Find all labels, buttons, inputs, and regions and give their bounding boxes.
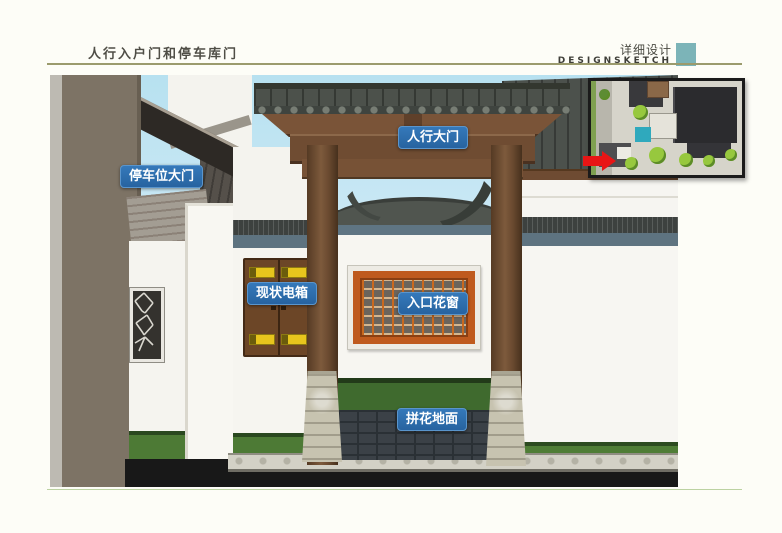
annotation-parking-gate: 停车位大门 [120, 165, 203, 188]
white-pillar [185, 203, 236, 474]
footer-divider [47, 489, 742, 490]
ebox-wall-band [233, 235, 307, 248]
annotation-entrance-window: 入口花窗 [398, 292, 468, 315]
annotation-electric-box: 现状电箱 [247, 282, 317, 305]
plan-water-feature [635, 127, 651, 142]
stone-drum-left [302, 371, 342, 462]
design-slide: 人行入户门和停车库门 详细设计 DESIGNSKETCH [0, 0, 782, 533]
stone-drum-right [486, 371, 526, 466]
right-wall-band [522, 233, 678, 246]
plan-roof-main [673, 87, 737, 143]
electric-box [243, 258, 313, 357]
annotation-pedestrian-gate: 人行大门 [398, 126, 468, 149]
locator-arrow-icon [583, 151, 619, 171]
warning-sticker-icon [281, 267, 307, 278]
page-title: 人行入户门和停车库门 [88, 43, 238, 62]
plan-brown-block [647, 81, 669, 98]
right-white-wall [522, 246, 678, 444]
left-grass-strip [129, 431, 185, 461]
gate-eave-tiles [254, 106, 570, 114]
tree-icon [649, 147, 666, 164]
door-handle-icon [271, 306, 276, 310]
tree-icon [599, 89, 610, 100]
plan-pavilion [649, 113, 677, 139]
gate-wall-coping [338, 225, 491, 235]
right-wall-top [516, 180, 678, 218]
door-handle-icon [281, 306, 286, 310]
annotation-mosaic-paving: 拼花地面 [397, 408, 467, 431]
warning-sticker-icon [281, 334, 307, 345]
tree-icon [725, 149, 737, 161]
tree-icon [679, 153, 693, 167]
upturned-eave-icon [438, 175, 494, 227]
warning-sticker-icon [249, 267, 275, 278]
right-wall-tile-coping [522, 217, 678, 233]
tree-icon [633, 105, 648, 120]
tree-icon [625, 157, 638, 170]
gate-rendering: 停车位大门 人行大门 现状电箱 入口花窗 拼花地面 [50, 75, 678, 487]
warning-sticker-icon [249, 334, 275, 345]
ebox-wall-coping [233, 220, 307, 235]
upturned-eave-icon [346, 187, 382, 221]
crackle-lattice-window [130, 288, 164, 362]
tree-icon [703, 155, 715, 167]
header-divider [47, 63, 742, 65]
